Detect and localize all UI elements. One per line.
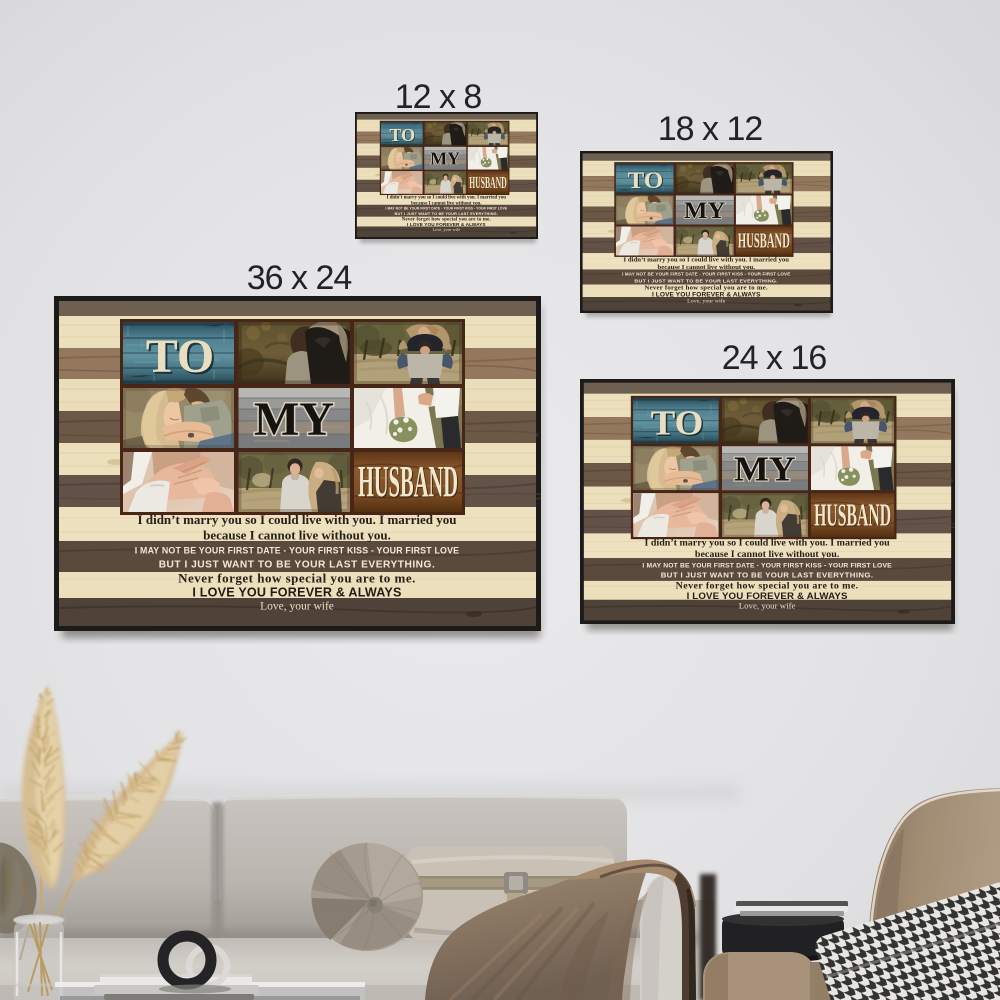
- svg-text:36 x 24: 36 x 24: [247, 259, 352, 297]
- svg-text:24 x 16: 24 x 16: [722, 339, 827, 377]
- svg-text:12 x 8: 12 x 8: [395, 78, 482, 116]
- svg-text:18 x 12: 18 x 12: [658, 110, 763, 148]
